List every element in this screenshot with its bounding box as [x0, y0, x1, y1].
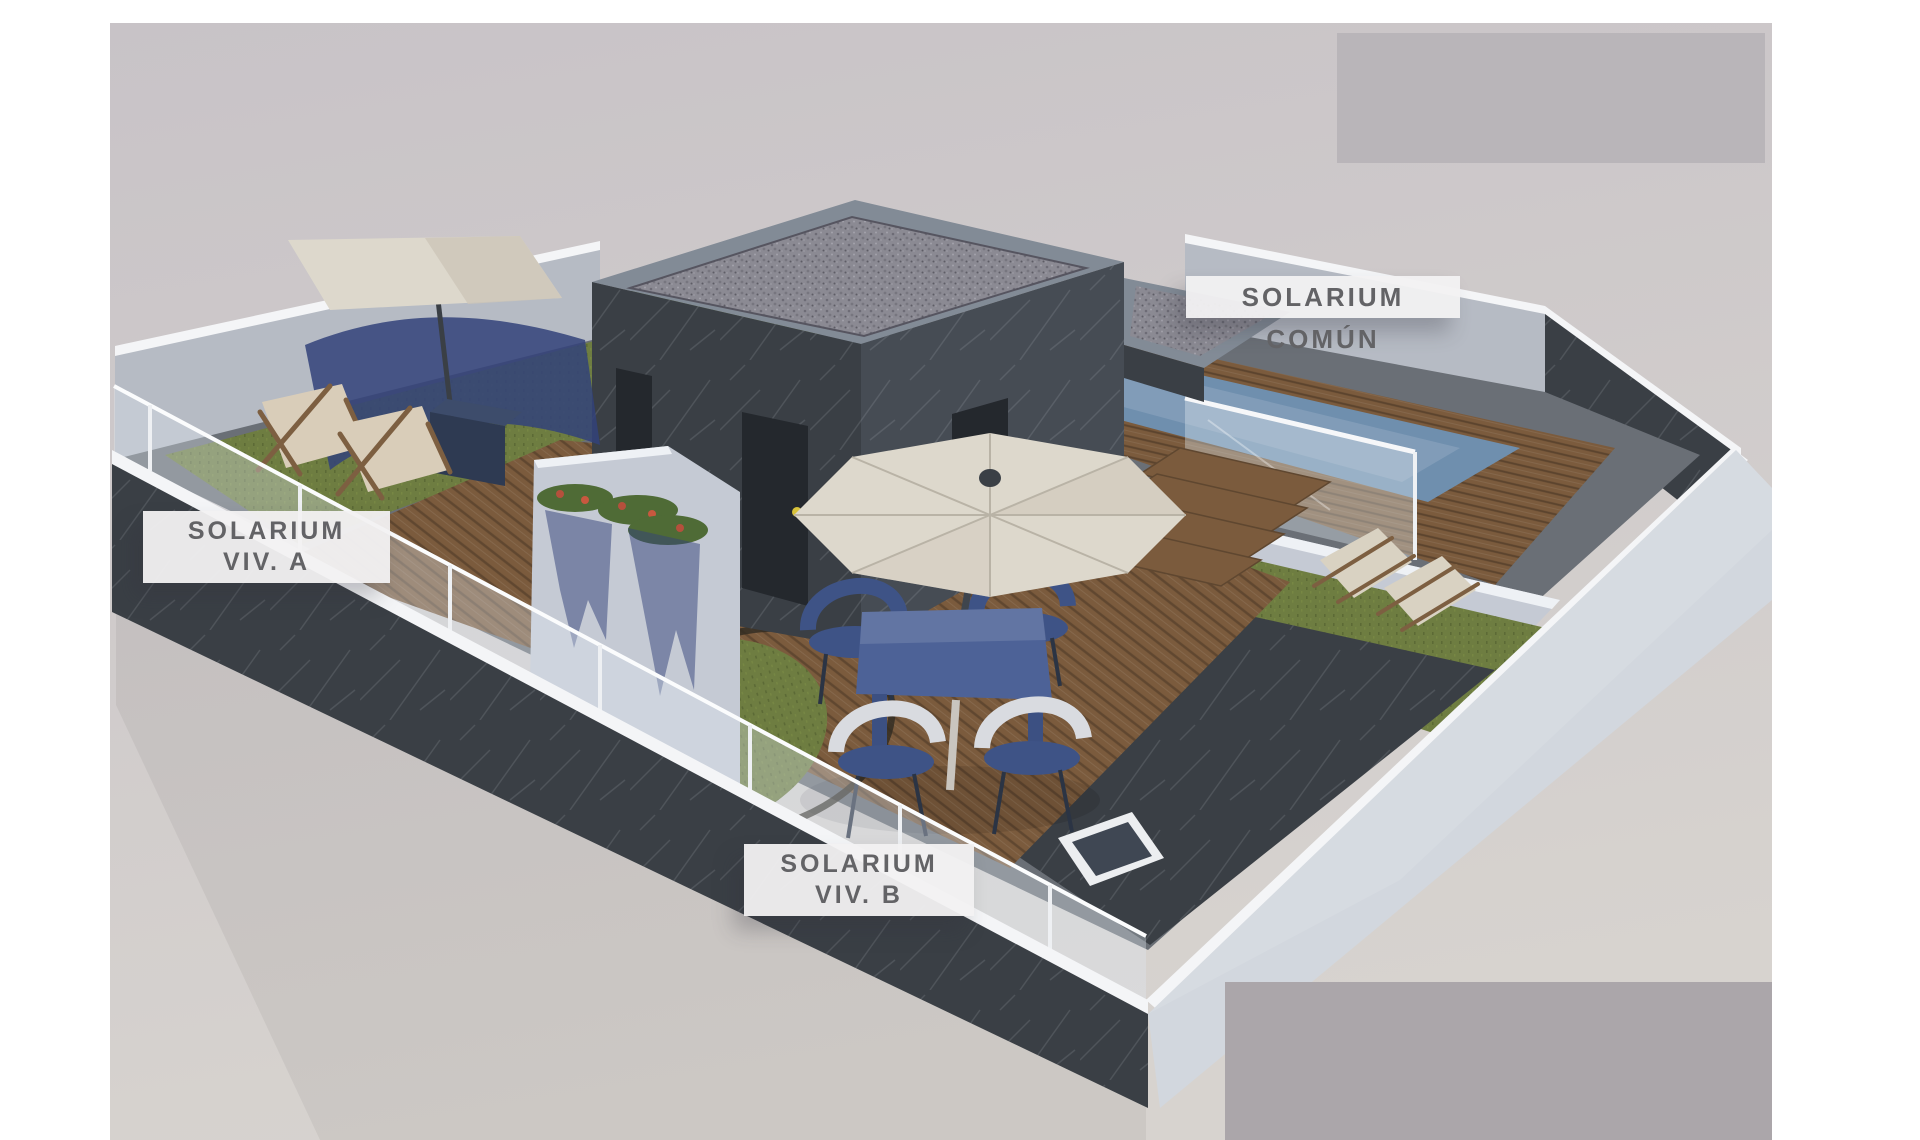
umbrella-finial: [979, 469, 1001, 487]
dining-umbrella: [794, 433, 1186, 597]
label-solarium-comun: SOLARIUM COMÚN: [1186, 276, 1460, 318]
masked-area-top-right: [1337, 33, 1765, 163]
label-viv-a-line1: SOLARIUM: [143, 516, 390, 547]
label-solarium-viv-b: SOLARIUM VIV. B: [744, 844, 974, 916]
label-viv-b-line2: VIV. B: [744, 880, 974, 911]
label-viv-b-line1: SOLARIUM: [744, 849, 974, 880]
masked-area-bottom-right: [1225, 982, 1772, 1140]
page: SOLARIUM COMÚN SOLARIUM VIV. A SOLARIUM …: [0, 0, 1920, 1140]
label-viv-a-line2: VIV. A: [143, 547, 390, 578]
label-solarium-viv-a: SOLARIUM VIV. A: [143, 511, 390, 583]
